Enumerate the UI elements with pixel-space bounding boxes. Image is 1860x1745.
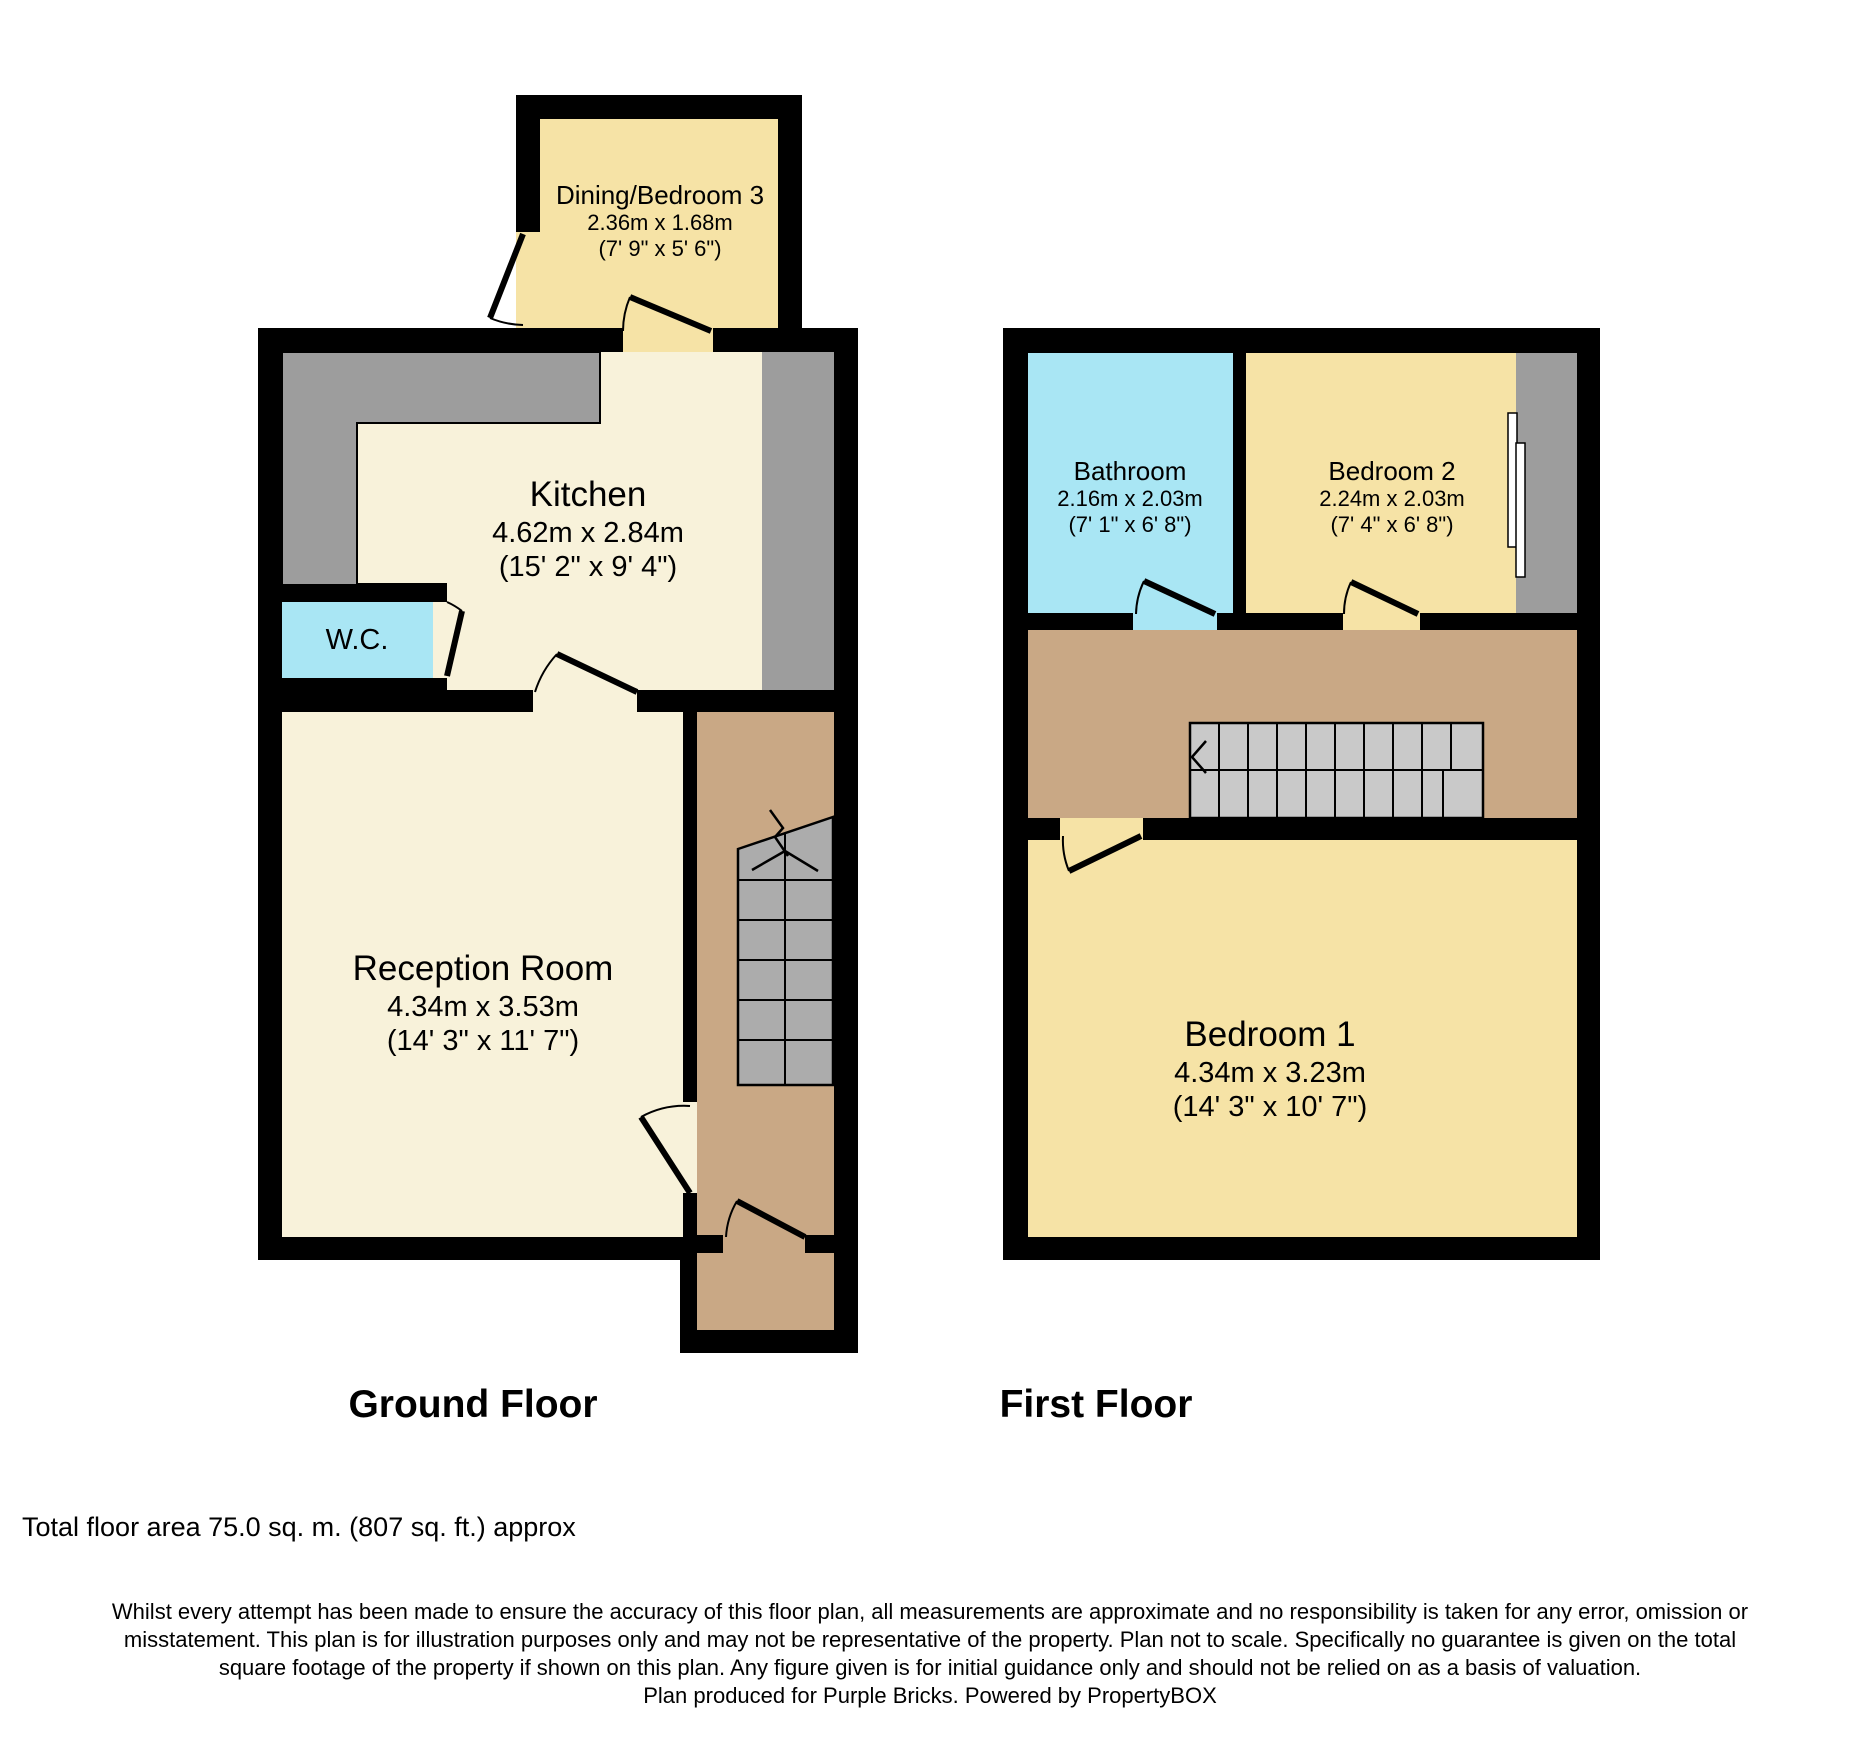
wall (778, 95, 802, 352)
disclaimer-line: Whilst every attempt has been made to en… (0, 1598, 1860, 1626)
room-size-metric: 2.24m x 2.03m (1319, 486, 1465, 512)
wall (637, 690, 858, 712)
wall (258, 583, 447, 602)
wall (1003, 328, 1028, 1260)
wall (516, 95, 802, 119)
room-size-metric: 2.36m x 1.68m (556, 210, 764, 236)
total-floor-area: Total floor area 75.0 sq. m. (807 sq. ft… (22, 1512, 576, 1543)
disclaimer-text: Whilst every attempt has been made to en… (0, 1598, 1860, 1710)
wall (1420, 613, 1577, 630)
wall (683, 1193, 697, 1237)
room-label-reception: Reception Room 4.34m x 3.53m (14' 3" x 1… (353, 948, 614, 1058)
wall (258, 328, 623, 352)
room-size-metric: 2.16m x 2.03m (1057, 486, 1203, 512)
built-in-wardrobe (1516, 353, 1577, 613)
room-label-bathroom: Bathroom 2.16m x 2.03m (7' 1" x 6' 8") (1057, 456, 1203, 538)
wall (258, 1237, 697, 1260)
room-name: Bedroom 2 (1319, 456, 1465, 486)
room-label-bedroom2: Bedroom 2 2.24m x 2.03m (7' 4" x 6' 8") (1319, 456, 1465, 538)
wall (1003, 1237, 1600, 1260)
kitchen-chimney-breast (762, 352, 834, 690)
room-name: Bedroom 1 (1173, 1014, 1367, 1056)
room-size-imperial: (14' 3" x 11' 7") (353, 1024, 614, 1058)
room-size-metric: 4.34m x 3.23m (1173, 1056, 1367, 1090)
room-size-imperial: (14' 3" x 10' 7") (1173, 1090, 1367, 1124)
wall (258, 690, 533, 712)
wall (680, 1330, 858, 1353)
room-name: Reception Room (353, 948, 614, 990)
landing (1028, 613, 1577, 840)
wall (1003, 328, 1600, 353)
wall (1246, 613, 1343, 630)
room-size-imperial: (7' 4" x 6' 8") (1319, 512, 1465, 538)
wall (683, 712, 697, 1102)
disclaimer-line: square footage of the property if shown … (0, 1654, 1860, 1682)
wall (1028, 613, 1133, 630)
room-size-metric: 4.34m x 3.53m (353, 990, 614, 1024)
dining-kitchen-opening (623, 328, 713, 352)
floorplan-canvas: Dining/Bedroom 3 2.36m x 1.68m (7' 9" x … (0, 0, 1860, 1745)
bedroom2-door-gap (1343, 613, 1420, 630)
bedroom1-door-gap (1060, 818, 1143, 840)
room-label-wc: W.C. (326, 624, 389, 657)
room-label-kitchen: Kitchen 4.62m x 2.84m (15' 2" x 9' 4") (492, 474, 684, 584)
wc-door-gap (433, 602, 447, 678)
room-name: Kitchen (492, 474, 684, 516)
room-label-dining-bedroom3: Dining/Bedroom 3 2.36m x 1.68m (7' 9" x … (556, 180, 764, 262)
room-name: W.C. (326, 624, 389, 657)
wall (258, 328, 282, 1260)
ground-floor-title: Ground Floor (348, 1383, 597, 1427)
wall (1028, 818, 1060, 840)
room-size-imperial: (7' 9" x 5' 6") (556, 236, 764, 262)
room-size-metric: 4.62m x 2.84m (492, 516, 684, 550)
room-name: Dining/Bedroom 3 (556, 180, 764, 210)
wall (1577, 328, 1600, 1260)
room-label-bedroom1: Bedroom 1 4.34m x 3.23m (14' 3" x 10' 7"… (1173, 1014, 1367, 1124)
wall (697, 1235, 723, 1253)
room-size-imperial: (15' 2" x 9' 4") (492, 550, 684, 584)
wall (1143, 818, 1577, 840)
room-name: Bathroom (1057, 456, 1203, 486)
bathroom-door-gap (1133, 613, 1217, 630)
wall (1217, 613, 1246, 630)
room-size-imperial: (7' 1" x 6' 8") (1057, 512, 1203, 538)
disclaimer-credit: Plan produced for Purple Bricks. Powered… (0, 1682, 1860, 1710)
dining-exterior-door-gap (516, 232, 540, 328)
wall (805, 1235, 834, 1253)
wall (1233, 353, 1246, 616)
kitchen-reception-door-gap (533, 690, 637, 712)
hallway-reception-door-gap (683, 1102, 697, 1193)
wall (516, 95, 540, 232)
first-floor-title: First Floor (1000, 1383, 1193, 1427)
wall (834, 328, 858, 1353)
disclaimer-line: misstatement. This plan is for illustrat… (0, 1626, 1860, 1654)
